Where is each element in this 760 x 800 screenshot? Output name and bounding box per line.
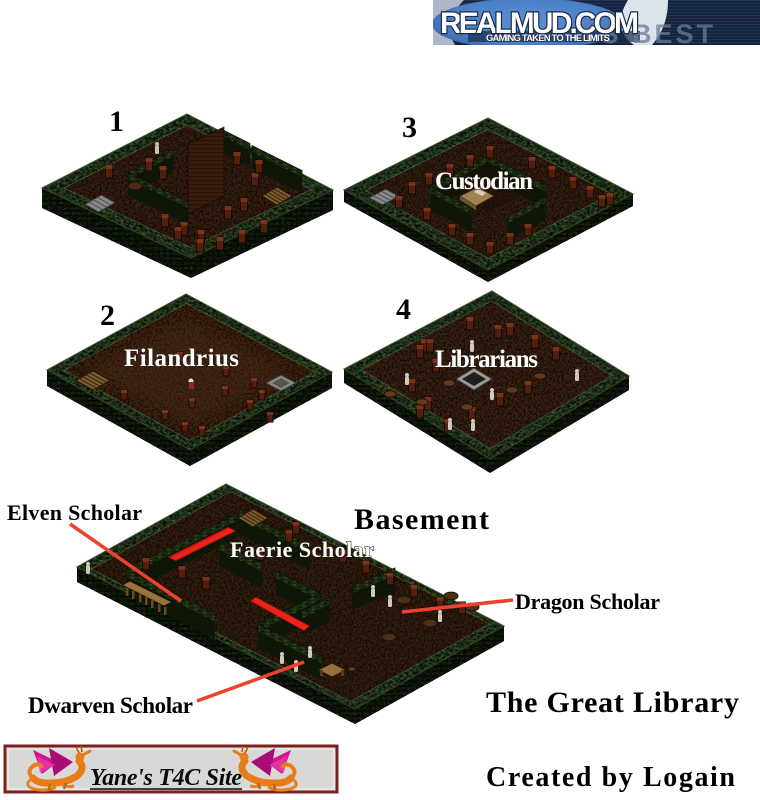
svg-text:Filandrius: Filandrius — [124, 345, 239, 372]
svg-text:4: 4 — [396, 293, 411, 326]
svg-text:Yane's T4C Site: Yane's T4C Site — [90, 765, 242, 791]
svg-text:GAMING TAKEN TO THE LIMITS: GAMING TAKEN TO THE LIMITS — [486, 33, 610, 44]
svg-text:Elven Scholar: Elven Scholar — [7, 500, 142, 525]
svg-text:Dwarven Scholar: Dwarven Scholar — [28, 693, 193, 718]
svg-text:The Great Library: The Great Library — [486, 686, 739, 719]
svg-text:Created by Logain: Created by Logain — [486, 762, 735, 793]
svg-text:2: 2 — [100, 299, 115, 332]
svg-text:Faerie Scholar: Faerie Scholar — [230, 537, 374, 562]
svg-text:Dragon Scholar: Dragon Scholar — [515, 589, 660, 614]
svg-text:Custodian: Custodian — [435, 168, 533, 195]
svg-text:3: 3 — [402, 111, 417, 144]
svg-text:1: 1 — [109, 105, 124, 138]
svg-text:Librarians: Librarians — [435, 346, 538, 373]
